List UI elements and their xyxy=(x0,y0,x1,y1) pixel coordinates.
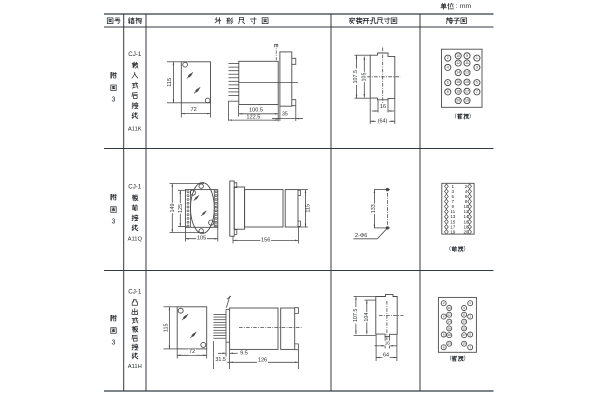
svg-text:19: 19 xyxy=(465,99,469,103)
svg-text:A11K: A11K xyxy=(128,127,142,133)
svg-text:19: 19 xyxy=(450,229,456,234)
svg-text:105: 105 xyxy=(197,236,206,242)
svg-text:1: 1 xyxy=(476,56,478,60)
svg-text:16: 16 xyxy=(385,341,391,346)
svg-text:CJ-1: CJ-1 xyxy=(128,184,142,191)
svg-text:15: 15 xyxy=(465,80,469,84)
svg-text:10: 10 xyxy=(448,306,452,310)
svg-text:18: 18 xyxy=(448,333,452,337)
svg-text:8: 8 xyxy=(447,90,449,94)
svg-text:133: 133 xyxy=(371,204,377,213)
svg-text:): ) xyxy=(464,356,466,362)
svg-text:): ) xyxy=(464,246,466,252)
svg-text:16: 16 xyxy=(380,104,386,110)
svg-text:16: 16 xyxy=(448,326,452,330)
svg-text:3: 3 xyxy=(476,65,478,69)
svg-text:125: 125 xyxy=(178,204,184,213)
svg-text:64: 64 xyxy=(383,353,389,359)
svg-text:(: ( xyxy=(449,246,451,252)
svg-text:3: 3 xyxy=(112,218,116,225)
svg-text:4: 4 xyxy=(447,65,449,69)
svg-text:7: 7 xyxy=(476,90,478,94)
svg-text:104: 104 xyxy=(364,313,370,322)
svg-text:15: 15 xyxy=(462,326,466,330)
svg-text:2-Φ6: 2-Φ6 xyxy=(355,233,367,239)
svg-text:3: 3 xyxy=(112,339,116,346)
svg-text:105: 105 xyxy=(361,73,367,82)
svg-text:156: 156 xyxy=(261,237,270,243)
svg-text:9.5: 9.5 xyxy=(240,350,248,356)
svg-text:12: 12 xyxy=(456,61,460,65)
svg-text:31.5: 31.5 xyxy=(215,357,226,363)
svg-text:35: 35 xyxy=(282,112,288,118)
svg-text:149: 149 xyxy=(170,204,176,213)
svg-text:A11H: A11H xyxy=(128,364,142,370)
svg-text:126: 126 xyxy=(258,357,267,363)
svg-text:12: 12 xyxy=(448,313,452,317)
svg-text:(: ( xyxy=(455,113,457,119)
svg-text:18: 18 xyxy=(456,89,460,93)
svg-text:9: 9 xyxy=(466,54,468,58)
svg-text:122.5: 122.5 xyxy=(246,114,260,120)
svg-text:10: 10 xyxy=(456,54,460,58)
svg-text:107.5: 107.5 xyxy=(353,309,359,323)
svg-text:72: 72 xyxy=(189,349,195,355)
svg-text:100.5: 100.5 xyxy=(249,108,263,114)
svg-text:72: 72 xyxy=(190,107,196,113)
svg-text:115: 115 xyxy=(163,324,169,333)
svg-text:11: 11 xyxy=(465,61,469,65)
svg-text:17: 17 xyxy=(462,333,466,337)
svg-text:(64): (64) xyxy=(378,118,388,124)
svg-text:CJ-1: CJ-1 xyxy=(128,289,142,296)
svg-text:115: 115 xyxy=(305,204,311,213)
svg-text:20: 20 xyxy=(448,342,452,346)
svg-text:13: 13 xyxy=(465,71,469,75)
svg-text:11: 11 xyxy=(463,313,466,317)
svg-text:115: 115 xyxy=(167,78,173,87)
svg-text:14: 14 xyxy=(456,71,460,75)
svg-text:6: 6 xyxy=(447,81,449,85)
svg-text:14: 14 xyxy=(448,320,452,324)
svg-text:CJ-1: CJ-1 xyxy=(128,51,142,58)
svg-text:): ) xyxy=(469,113,471,119)
svg-text:16: 16 xyxy=(456,80,460,84)
svg-text:107.5: 107.5 xyxy=(353,70,359,84)
svg-text:3: 3 xyxy=(112,97,116,104)
svg-text:13: 13 xyxy=(462,320,466,324)
svg-text:(: ( xyxy=(450,356,452,362)
svg-text:19: 19 xyxy=(462,342,466,346)
svg-text:mm: mm xyxy=(460,3,472,10)
svg-text:2: 2 xyxy=(447,56,449,60)
svg-text:5: 5 xyxy=(476,81,478,85)
svg-text:20: 20 xyxy=(456,99,460,103)
svg-text:A11Q: A11Q xyxy=(128,237,143,243)
svg-text:20: 20 xyxy=(463,229,469,234)
svg-text::: : xyxy=(456,3,458,10)
svg-text:17: 17 xyxy=(465,89,469,93)
